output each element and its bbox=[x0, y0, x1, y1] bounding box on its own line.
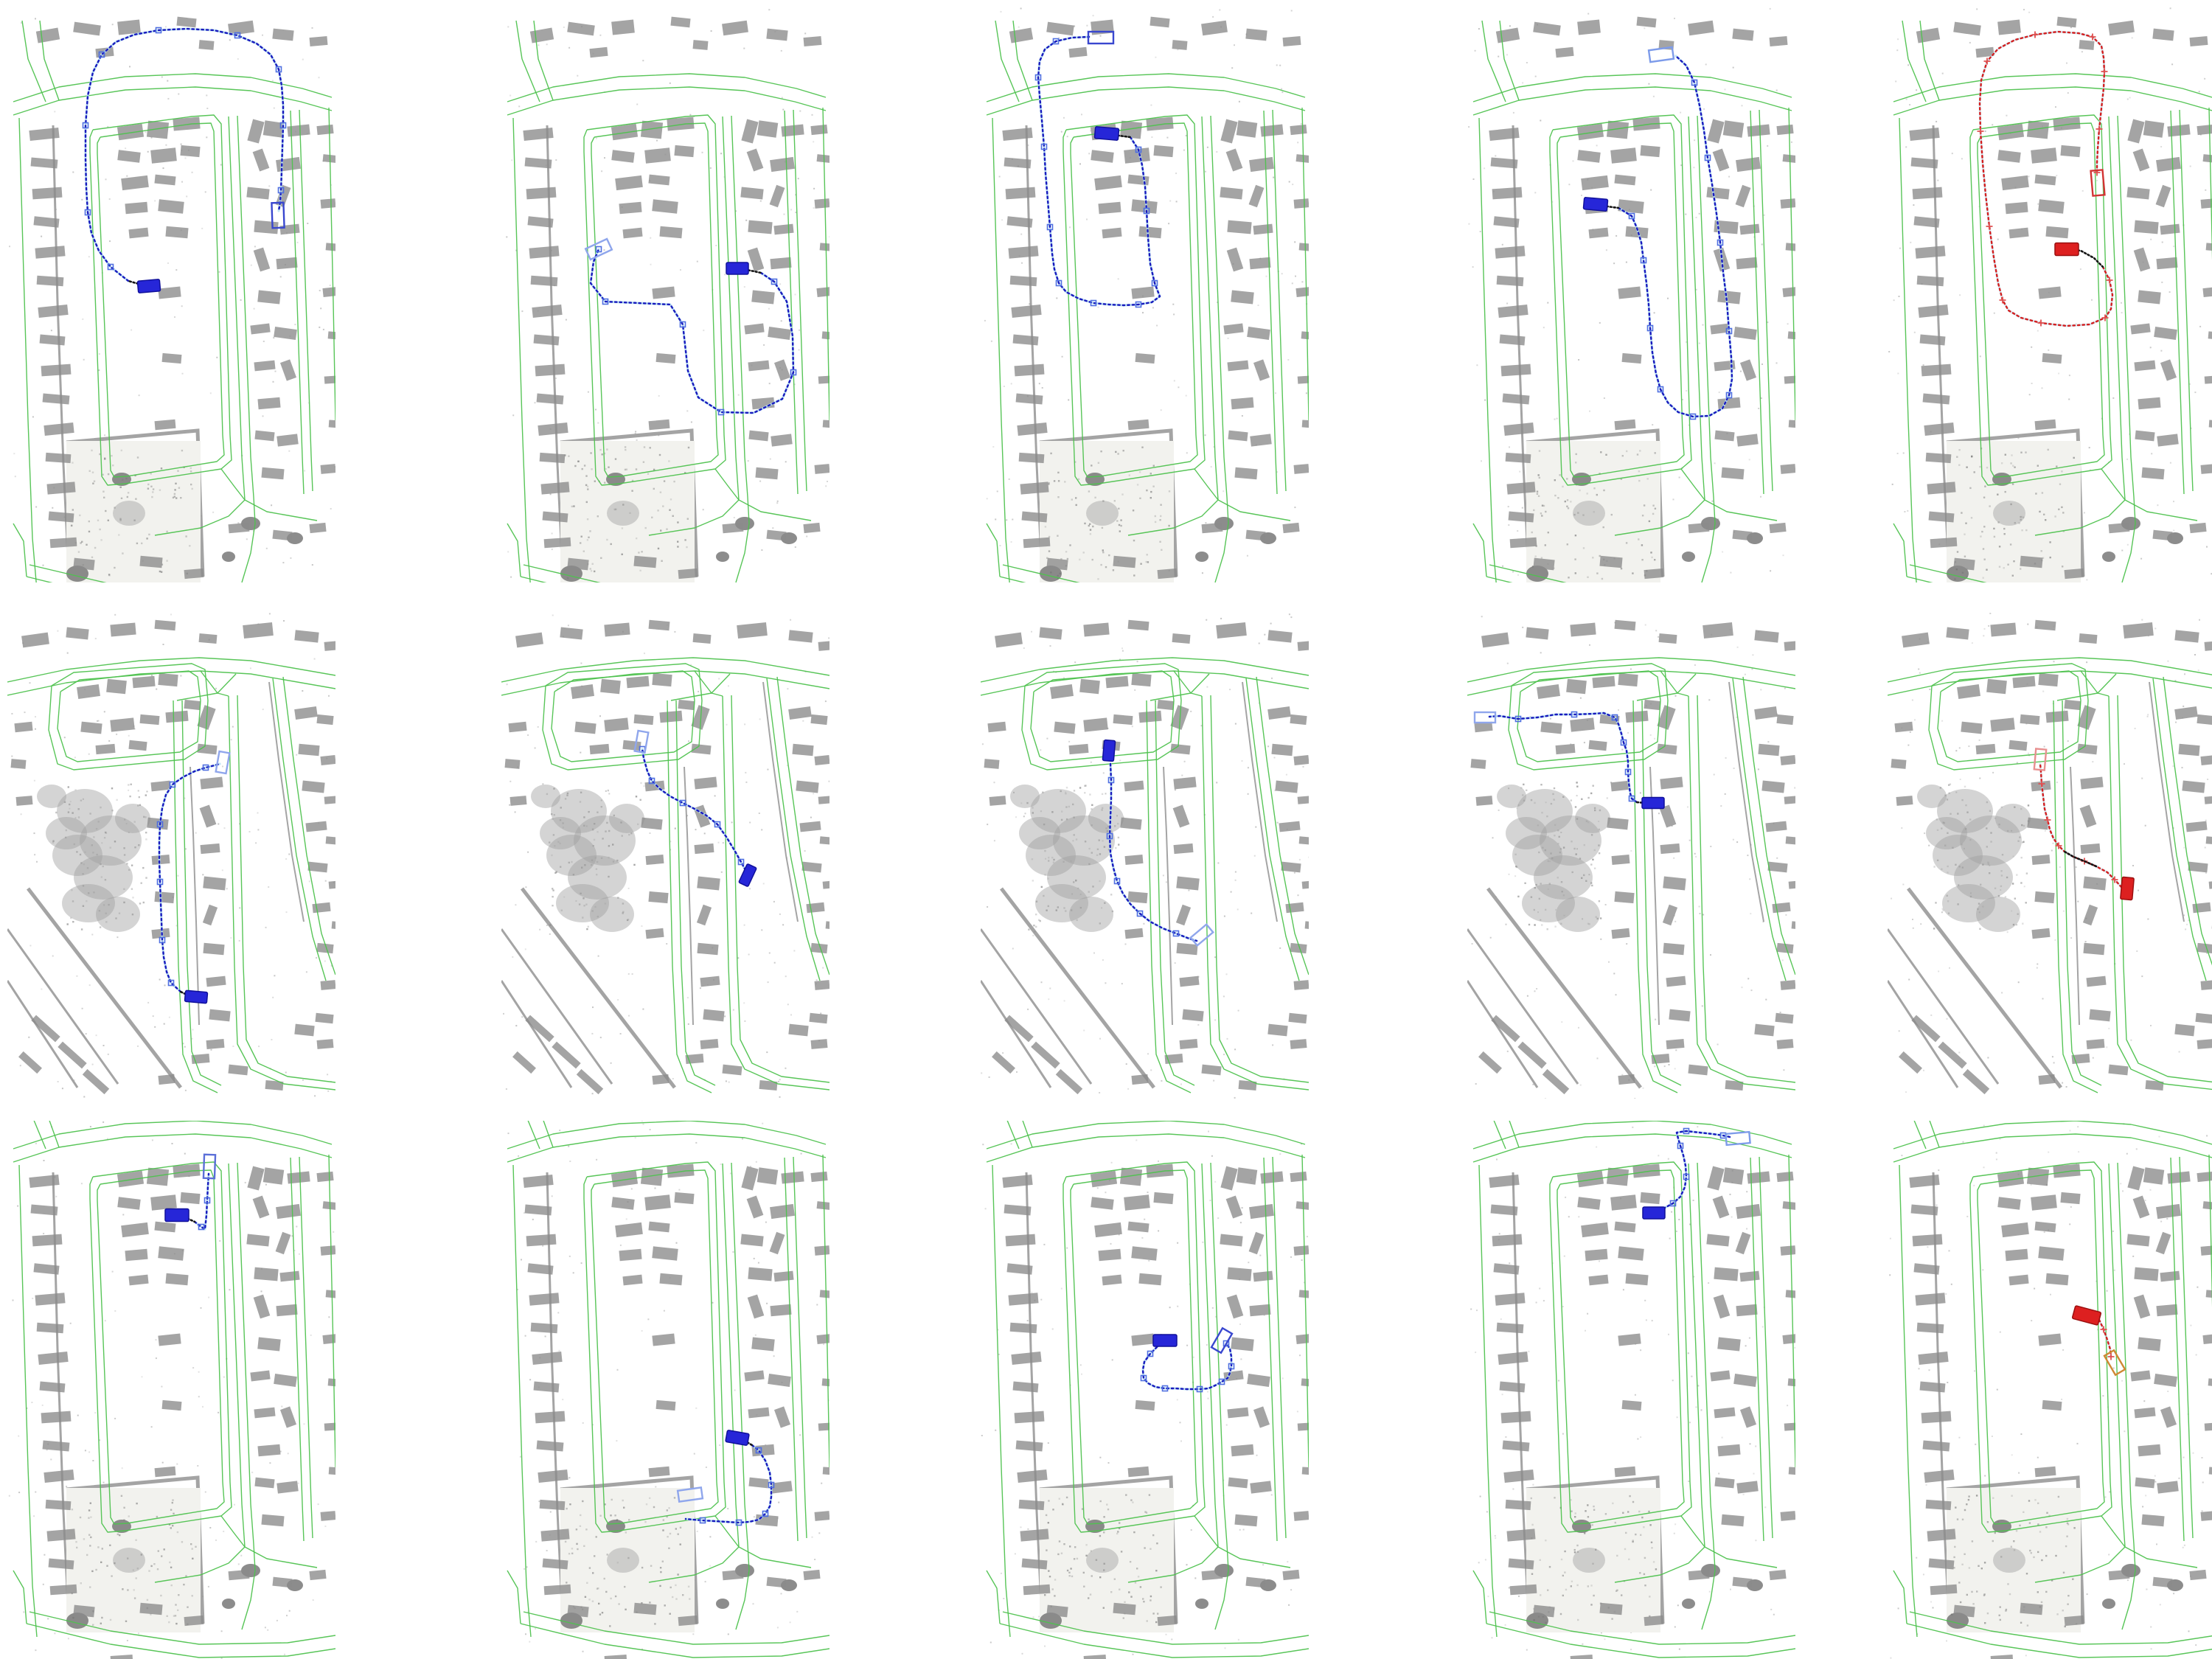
trajectory-map-r3c2 bbox=[501, 1121, 829, 1659]
trajectory-underlay bbox=[642, 749, 745, 870]
vehicle-box bbox=[165, 1209, 189, 1222]
map-background bbox=[1888, 7, 2212, 582]
map-background bbox=[1888, 613, 2212, 1094]
trajectory-map-r1c2 bbox=[501, 7, 829, 582]
map-background bbox=[981, 1121, 1309, 1659]
trajectory-map-r3c4 bbox=[1467, 1121, 1795, 1659]
trajectory-map-r2c4 bbox=[1467, 612, 1795, 1099]
goal-box bbox=[1725, 1132, 1750, 1145]
vehicle-box bbox=[1153, 1335, 1177, 1346]
predicted-trajectory bbox=[2099, 1320, 2111, 1357]
map-background bbox=[1470, 1121, 1795, 1659]
map-panel-r3c2 bbox=[501, 1121, 829, 1659]
vehicle-box bbox=[2055, 243, 2079, 256]
vehicle-box bbox=[1094, 127, 1119, 141]
trajectory-map-r1c3 bbox=[981, 7, 1309, 582]
vehicle-box bbox=[726, 1430, 749, 1446]
map-background bbox=[9, 17, 335, 582]
map-background bbox=[984, 8, 1309, 583]
vehicle-box bbox=[2121, 877, 2135, 900]
map-background bbox=[1889, 1121, 2212, 1659]
map-background bbox=[1468, 8, 1795, 582]
goal-box bbox=[216, 751, 230, 773]
vehicle-box bbox=[137, 279, 160, 293]
map-panel-r2c2 bbox=[501, 612, 829, 1099]
vehicle-box bbox=[1642, 798, 1664, 809]
trajectory-map-r3c5 bbox=[1888, 1121, 2212, 1659]
trajectory-map-r1c1 bbox=[7, 7, 335, 582]
trajectory-map-r2c3 bbox=[981, 612, 1309, 1099]
vehicle-box bbox=[2072, 1306, 2101, 1326]
trajectory-map-r3c3 bbox=[981, 1121, 1309, 1659]
map-panel-r1c1 bbox=[7, 7, 335, 582]
map-panel-r3c3 bbox=[981, 1121, 1309, 1659]
map-panel-r2c3 bbox=[981, 612, 1309, 1099]
map-background bbox=[507, 1121, 829, 1659]
goal-box bbox=[1191, 925, 1213, 946]
trajectory-map-r2c5 bbox=[1888, 612, 2212, 1099]
trajectory-map-r2c2 bbox=[501, 612, 829, 1099]
figure-page bbox=[0, 0, 2212, 1659]
vehicle-box bbox=[1102, 740, 1115, 761]
map-panel-r2c5 bbox=[1888, 612, 2212, 1099]
map-panel-r1c2 bbox=[501, 7, 829, 582]
map-background bbox=[1467, 616, 1795, 1099]
map-panel-r2c4 bbox=[1467, 612, 1795, 1099]
map-panel-r2c1 bbox=[7, 612, 335, 1099]
waypoint-markers bbox=[640, 747, 744, 865]
vehicle-box bbox=[739, 863, 757, 886]
map-panel-r1c5 bbox=[1888, 7, 2212, 582]
map-background bbox=[7, 613, 335, 1097]
vehicle-box bbox=[726, 262, 748, 274]
map-panel-r3c4 bbox=[1467, 1121, 1795, 1659]
trajectory-map-r1c5 bbox=[1888, 7, 2212, 582]
map-background bbox=[501, 615, 829, 1098]
trajectory-map-r1c4 bbox=[1467, 7, 1795, 582]
map-panel-r3c1 bbox=[7, 1121, 335, 1659]
vehicle-box bbox=[1643, 1207, 1665, 1219]
map-background bbox=[981, 613, 1309, 1099]
map-panel-r3c5 bbox=[1888, 1121, 2212, 1659]
waypoint-markers bbox=[199, 1198, 210, 1230]
map-background bbox=[9, 1121, 335, 1659]
map-background bbox=[506, 9, 829, 582]
trajectory-map-r2c1 bbox=[7, 612, 335, 1099]
vehicle-box bbox=[1583, 198, 1607, 212]
vehicle-box bbox=[184, 990, 207, 1004]
trajectory-map-r3c1 bbox=[7, 1121, 335, 1659]
map-panel-r1c4 bbox=[1467, 7, 1795, 582]
map-panel-r1c3 bbox=[981, 7, 1309, 582]
